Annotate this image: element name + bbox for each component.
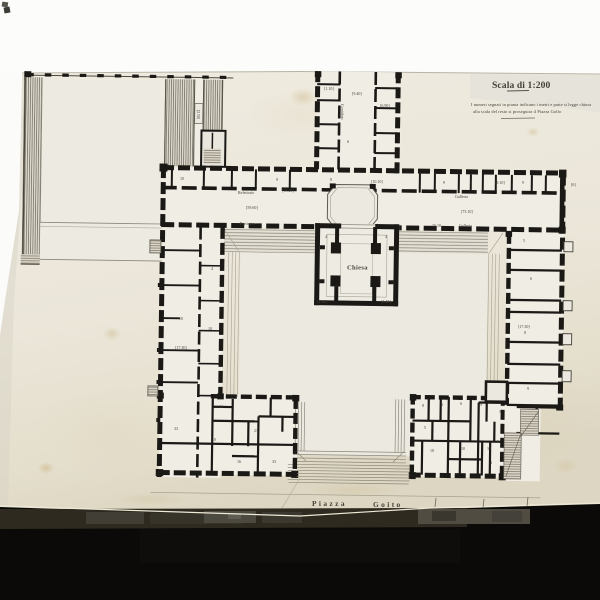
svg-text:Galleria: Galleria (455, 194, 468, 199)
svg-text:33: 33 (487, 446, 491, 451)
svg-text:[9.10]: [9.10] (495, 180, 505, 185)
svg-text:alla scala del resto si proseg: alla scala del resto si proseguira il Pi… (473, 109, 562, 114)
svg-text:[17.30]: [17.30] (175, 345, 187, 350)
svg-text:15.10: 15.10 (432, 223, 441, 228)
svg-text:9: 9 (480, 402, 482, 407)
svg-text:3: 3 (499, 409, 501, 414)
svg-text:Refettorio: Refettorio (238, 190, 254, 195)
svg-text:33: 33 (174, 426, 178, 431)
svg-text:[10.10]: [10.10] (371, 179, 383, 184)
svg-text:8: 8 (330, 177, 332, 182)
svg-text:[18.20]: [18.20] (282, 188, 294, 193)
svg-text:4: 4 (211, 266, 213, 271)
svg-text:23: 23 (254, 428, 258, 433)
svg-text:Piazza: Piazza (312, 499, 347, 508)
svg-text:6: 6 (497, 439, 499, 444)
svg-text:3: 3 (441, 402, 443, 407)
svg-text:[1.10]: [1.10] (324, 86, 334, 91)
svg-text:[6]: [6] (571, 182, 576, 187)
svg-text:6: 6 (460, 401, 462, 406)
svg-text:Corridoio: Corridoio (340, 104, 345, 120)
svg-text:[17.30]: [17.30] (518, 324, 530, 329)
svg-text:10: 10 (461, 446, 465, 451)
svg-text:[6.90]: [6.90] (380, 103, 390, 108)
svg-text:4: 4 (325, 234, 327, 239)
svg-text:Scala di 1:200: Scala di 1:200 (492, 80, 551, 91)
svg-text:10: 10 (208, 326, 212, 331)
svg-text:[73.10]: [73.10] (461, 209, 473, 214)
svg-text:Galleria: Galleria (459, 223, 472, 228)
svg-text:[2.50]: [2.50] (196, 110, 200, 119)
svg-text:8: 8 (524, 330, 526, 335)
svg-text:[9.40]: [9.40] (352, 91, 362, 96)
svg-text:9: 9 (522, 180, 524, 185)
svg-text:10: 10 (180, 176, 184, 181)
svg-text:9: 9 (443, 180, 445, 185)
svg-text:Porticato: Porticato (240, 221, 254, 226)
svg-text:Goito: Goito (373, 500, 403, 509)
svg-text:10: 10 (179, 316, 183, 321)
svg-text:4: 4 (385, 234, 387, 239)
svg-text:8: 8 (422, 403, 424, 408)
svg-text:24: 24 (219, 404, 223, 409)
svg-text:5: 5 (523, 238, 525, 243)
svg-text:33: 33 (272, 459, 276, 464)
svg-text:[59.60]: [59.60] (246, 205, 258, 210)
svg-text:10: 10 (212, 437, 216, 442)
svg-text:[4.40]: [4.40] (381, 299, 391, 304)
svg-text:9: 9 (276, 177, 278, 182)
svg-text:18: 18 (430, 448, 434, 453)
svg-text:6: 6 (470, 180, 472, 185)
svg-text:5: 5 (424, 425, 426, 430)
svg-text:[4.40]: [4.40] (317, 299, 327, 304)
svg-text:6: 6 (347, 139, 349, 144)
svg-text:4: 4 (490, 460, 492, 465)
svg-text:I numeri segnati in pianta ind: I numeri segnati in pianta indicano i me… (471, 102, 591, 107)
svg-text:16: 16 (237, 459, 241, 464)
svg-text:Chiesa: Chiesa (347, 265, 368, 272)
svg-text:9: 9 (527, 386, 529, 391)
svg-text:6: 6 (530, 276, 532, 281)
